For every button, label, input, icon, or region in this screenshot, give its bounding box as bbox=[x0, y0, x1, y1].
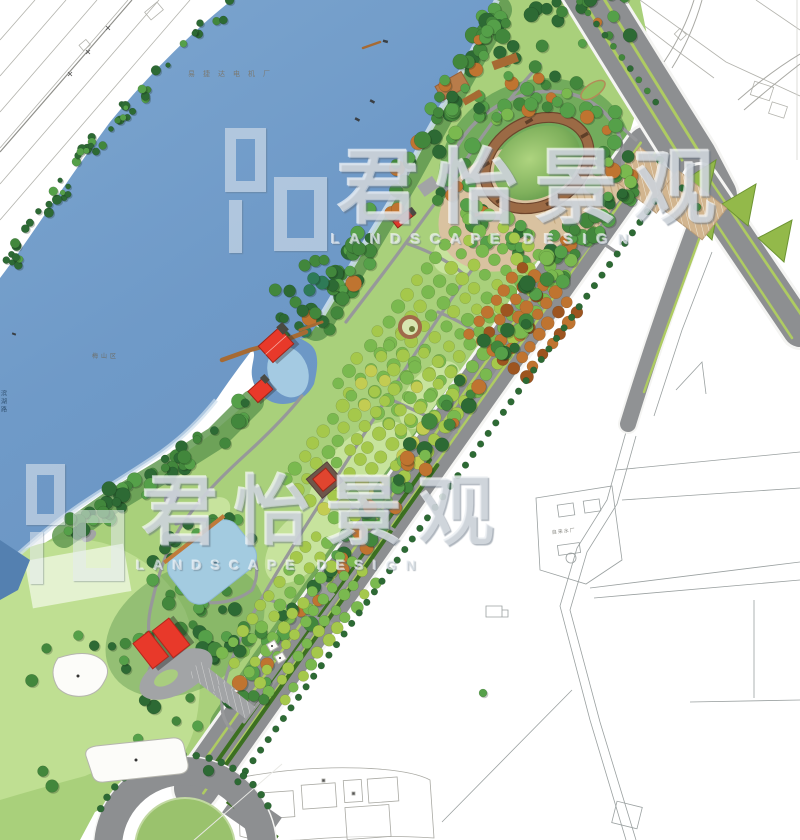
waterworks-label: 自来水厂 bbox=[551, 527, 576, 536]
left-road-label: 滨湖路 bbox=[0, 389, 7, 414]
village-label: 梅山区 bbox=[92, 352, 119, 360]
factory-label: 易捷达电机厂 bbox=[188, 69, 278, 78]
masterplan-canvas: 易捷达电机厂 梅山区 自来水厂 滨湖路 君怡景观 LANDSCAPE DESIG… bbox=[0, 0, 800, 840]
masterplan-svg: 易捷达电机厂 梅山区 自来水厂 滨湖路 bbox=[0, 0, 800, 840]
